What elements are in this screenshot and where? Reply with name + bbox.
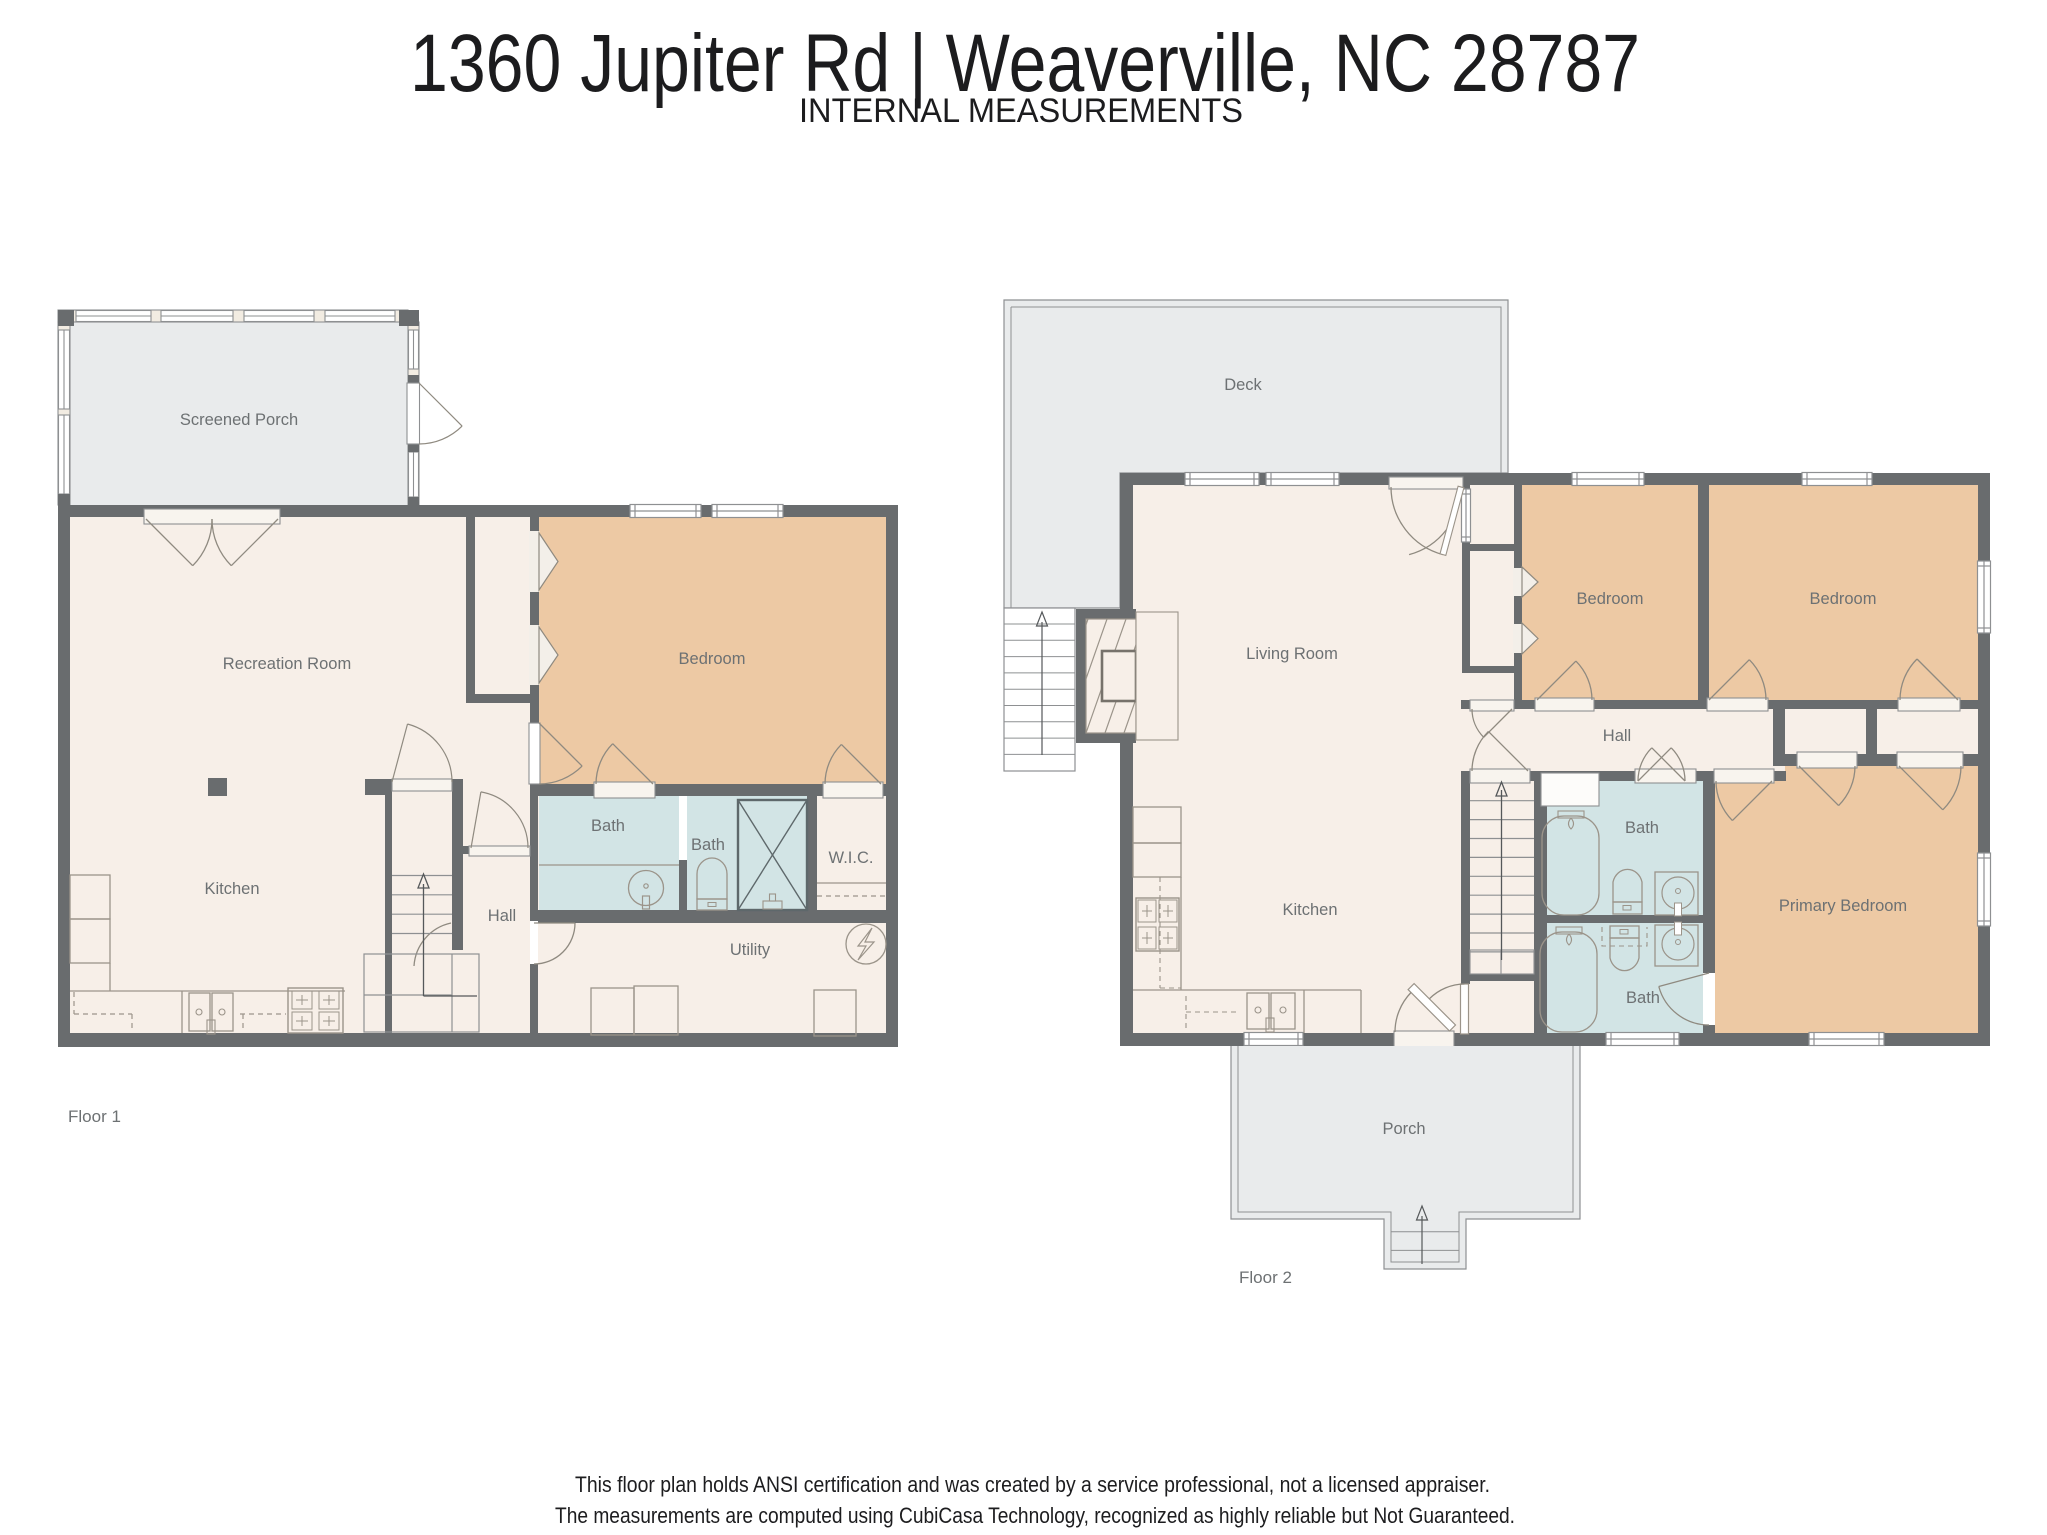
svg-text:Bath: Bath	[1626, 989, 1660, 1007]
svg-text:Deck: Deck	[1224, 376, 1262, 394]
svg-text:Screened Porch: Screened Porch	[180, 411, 298, 429]
svg-text:Kitchen: Kitchen	[1282, 901, 1337, 919]
svg-text:The measurements are computed: The measurements are computed using Cubi…	[555, 1503, 1515, 1528]
svg-text:Primary Bedroom: Primary Bedroom	[1779, 897, 1907, 915]
svg-text:Kitchen: Kitchen	[204, 880, 259, 898]
svg-text:Bath: Bath	[1625, 819, 1659, 837]
svg-text:Bedroom: Bedroom	[1577, 590, 1644, 608]
svg-text:Bath: Bath	[591, 817, 625, 835]
svg-text:W.I.C.: W.I.C.	[829, 849, 874, 867]
svg-text:Porch: Porch	[1382, 1120, 1425, 1138]
svg-text:Living Room: Living Room	[1246, 645, 1338, 663]
svg-text:Utility: Utility	[730, 941, 771, 959]
svg-text:Hall: Hall	[1603, 727, 1631, 745]
svg-text:Floor 2: Floor 2	[1239, 1268, 1292, 1287]
svg-text:Bedroom: Bedroom	[1810, 590, 1877, 608]
svg-text:Hall: Hall	[488, 907, 516, 925]
svg-text:INTERNAL MEASUREMENTS: INTERNAL MEASUREMENTS	[799, 92, 1243, 130]
svg-text:Floor 1: Floor 1	[68, 1107, 121, 1126]
svg-text:Bath: Bath	[691, 836, 725, 854]
svg-text:This floor plan holds ANSI cer: This floor plan holds ANSI certification…	[575, 1472, 1490, 1497]
svg-text:Recreation Room: Recreation Room	[223, 655, 351, 673]
svg-text:Bedroom: Bedroom	[679, 650, 746, 668]
